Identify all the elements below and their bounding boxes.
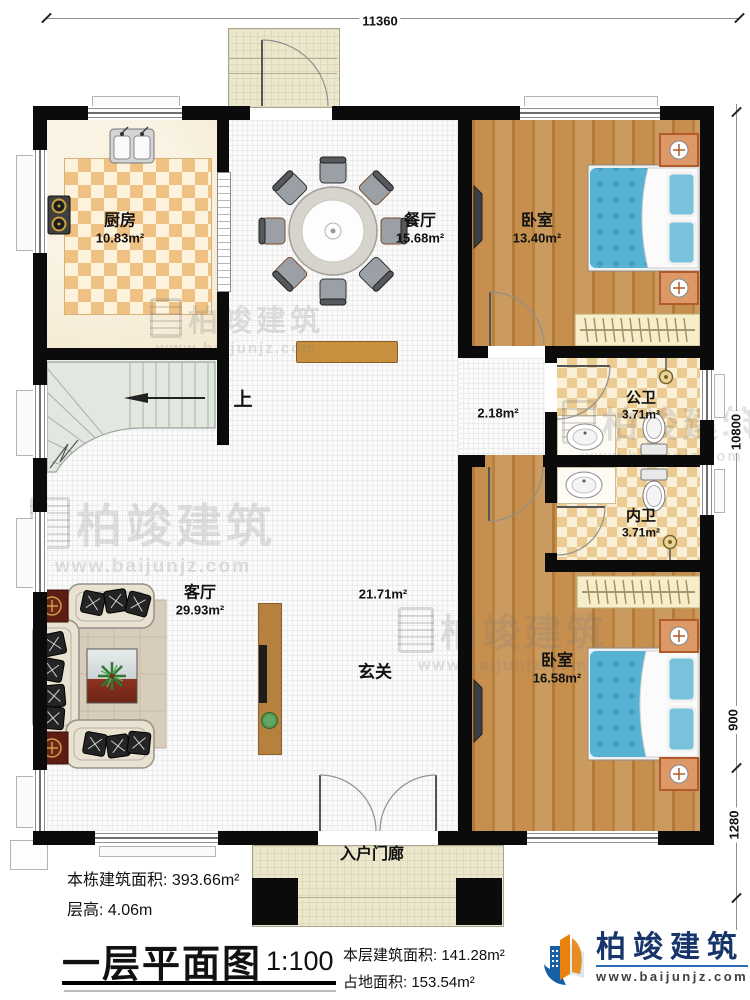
window-bath-public-right (700, 370, 714, 420)
living-label: 客厅29.93m² (176, 584, 224, 617)
bath-public-label: 公卫3.71m² (622, 391, 660, 422)
wall-bedroom2-top (545, 560, 700, 572)
kitchen-pass-through (217, 172, 231, 292)
dim-line-right (736, 104, 737, 930)
window-kitchen-left (33, 150, 47, 253)
logo-building-icon (540, 930, 588, 986)
window-living-left2 (33, 770, 47, 831)
wall-bedroom1-left (458, 120, 472, 346)
wall-stairs (217, 360, 229, 445)
wall-bedroom1-bottom (458, 346, 488, 358)
title-underline (62, 981, 336, 985)
top-porch-step-line (229, 58, 337, 59)
porch-column-right (456, 878, 502, 925)
company-logo: 柏竣建筑 www.baijunjz.com (540, 930, 748, 986)
kitchen-label: 厨房10.83m² (96, 212, 144, 245)
bedroom1-floor (472, 120, 700, 346)
plan-scale: 1:100 (266, 946, 334, 977)
foyer-label: 玄关 (358, 664, 392, 683)
window-bedroom1-top (520, 106, 660, 120)
bedroom2-floor (472, 572, 700, 831)
top-porch-step-line2 (229, 73, 337, 74)
cabinet-plant (261, 712, 278, 729)
logo-name: 柏竣建筑 (596, 933, 748, 963)
dining-sideboard (296, 341, 398, 363)
bath-private-counter (557, 467, 616, 504)
wall (33, 458, 47, 512)
window-sill (99, 846, 216, 857)
dim-top-value: 11360 (359, 14, 400, 29)
land-area: 占地面积: 153.54m² (343, 971, 475, 992)
title-underline2 (64, 990, 336, 992)
wall-bedroom1-bottom (545, 346, 700, 358)
window-living-bottom (95, 831, 218, 845)
window-sill (714, 374, 725, 418)
floor-area: 本层建筑面积: 141.28m² (343, 944, 505, 965)
wall (700, 420, 714, 465)
wall (182, 106, 250, 120)
bath-public-counter (557, 415, 616, 457)
window-living-left1 (33, 512, 47, 592)
wall-bedroom2-left (458, 455, 472, 831)
wall (332, 106, 520, 120)
wall (438, 831, 527, 845)
total-building-area: 本栋建筑面积: 393.66m² (67, 866, 240, 890)
wall-divider (543, 455, 700, 467)
wall (33, 831, 95, 845)
window-bedroom2-bottom (527, 831, 658, 845)
window-kitchen-top (88, 106, 182, 120)
plan-title: 一层平面图 (62, 933, 262, 988)
window-sill (714, 469, 725, 513)
wall-kitchen-dining (217, 120, 229, 172)
wall-bath-public-left (545, 358, 557, 363)
window-bath-private-right (700, 465, 714, 515)
porch-column-left (252, 878, 298, 925)
wall (33, 253, 47, 385)
wall-bath-private-left (545, 467, 557, 503)
wall (33, 592, 47, 770)
wall (700, 106, 714, 370)
top-porch (228, 28, 340, 108)
bath-private-label: 内卫3.71m² (622, 509, 660, 540)
wall (700, 515, 714, 845)
logo-url: www.baijunjz.com (596, 965, 748, 984)
dining-label: 餐厅15.68m² (396, 212, 444, 245)
floor-height: 层高: 4.06m (67, 896, 152, 920)
dim-right-lower: 1280 (727, 808, 742, 843)
stairs-up-label: 上 (233, 385, 252, 412)
wall-kitchen-bottom (33, 348, 229, 360)
dim-right-upper: 10800 (729, 411, 744, 453)
bedroom1-label: 卧室13.40m² (513, 212, 561, 245)
wall (218, 831, 318, 845)
window-stairs-left (33, 385, 47, 458)
bedroom2-label: 卧室16.58m² (533, 652, 581, 685)
hallway-area-label: 2.18m² (477, 406, 518, 421)
wall (33, 106, 47, 150)
floor-plan-canvas: 柏竣建筑 www.baijunjz.com 柏竣建筑 www.baijunjz.… (0, 0, 750, 1000)
entry-porch-label: 入户门廊 (340, 846, 404, 864)
living-tv (259, 645, 267, 703)
foyer-area-label: 21.71m² (359, 587, 407, 602)
dim-right-mid: 900 (726, 706, 741, 734)
